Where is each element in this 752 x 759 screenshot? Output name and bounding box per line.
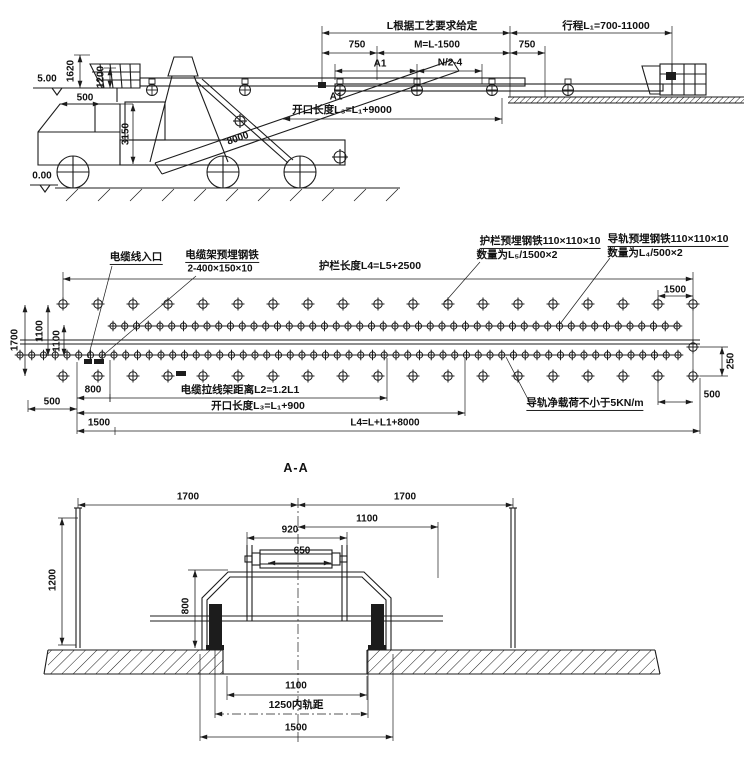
label-guardrail-length: 护栏长度L4=L5+2500 xyxy=(319,260,421,272)
label-cable-entry: 电缆线入口 xyxy=(110,251,163,265)
dim-1620: 1620 xyxy=(65,60,77,82)
label-guardrail-steel-2: 数量为L₅/1500×2 xyxy=(477,249,558,261)
dim-l-spec: L根据工艺要求给定 xyxy=(387,20,477,32)
label-cable-rack-2: 2-400×150×10 xyxy=(187,263,252,275)
label-cable-stay-distance: 电缆拉线架距离L2=1.2L1 xyxy=(181,384,300,396)
dim-750-left: 750 xyxy=(349,39,366,51)
dim-500-plan-left: 500 xyxy=(44,396,61,408)
section-title: A-A xyxy=(283,461,308,475)
dim-n-formula: N/2-4 xyxy=(438,57,462,69)
dim-1200-top: 1200 xyxy=(95,66,107,88)
dim-1500-sec: 1500 xyxy=(285,722,307,734)
labels-layer: L根据工艺要求给定 行程L₁=700-11000 750 M=L-1500 75… xyxy=(0,0,752,759)
dim-250-plan: 250 xyxy=(725,353,737,370)
dim-750-right: 750 xyxy=(519,39,536,51)
label-rail-steel-1: 导轨预埋钢铁110×110×10 xyxy=(608,233,729,247)
dim-m-formula: M=L-1500 xyxy=(414,39,460,51)
dim-travel: 行程L₁=700-11000 xyxy=(562,20,650,32)
dim-1100-sec-bottom: 1100 xyxy=(285,680,307,692)
dim-650: 650 xyxy=(294,545,311,557)
dim-a1-upper: A1 xyxy=(374,58,387,70)
dim-920: 920 xyxy=(282,524,299,536)
dim-1100-outer: 1100 xyxy=(34,320,46,342)
dim-1200-sec: 1200 xyxy=(47,569,59,591)
dim-1700-sec-left: 1700 xyxy=(177,491,199,503)
dim-1500-plan-left: 1500 xyxy=(88,417,110,429)
engineering-drawing-canvas: L根据工艺要求给定 行程L₁=700-11000 750 M=L-1500 75… xyxy=(0,0,752,759)
dim-3150: 3150 xyxy=(120,123,132,145)
dim-8000: 8000 xyxy=(226,130,251,148)
dim-800-plan: 800 xyxy=(85,384,102,396)
dim-1700-plan: 1700 xyxy=(9,329,21,351)
dim-500-top: 500 xyxy=(77,92,94,104)
label-cable-rack-1: 电缆架预埋钢铁 xyxy=(185,249,259,263)
elevation-top-level: 5.00 xyxy=(37,73,56,85)
dim-a1-lower: A1 xyxy=(330,91,343,103)
dim-1100-inner: 1100 xyxy=(51,330,63,352)
label-rail-steel-2: 数量为L₄/500×2 xyxy=(607,247,682,259)
label-guardrail-steel-1: 护栏预埋钢铁110×110×10 xyxy=(480,235,601,249)
dim-opening-top: 开口长度L₃=L₁+9000 xyxy=(292,104,392,116)
elevation-ground-level: 0.00 xyxy=(32,170,51,182)
dim-1700-sec-right: 1700 xyxy=(394,491,416,503)
label-l4-formula: L4=L+L1+8000 xyxy=(350,417,419,429)
dim-1100-sec-top: 1100 xyxy=(356,513,378,525)
dim-rail-gauge: 1250内轨距 xyxy=(269,699,324,711)
label-rail-load: 导轨净载荷不小于5KN/m xyxy=(526,397,643,411)
label-opening-plan: 开口长度L₃=L₁+900 xyxy=(211,400,305,412)
dim-800-sec: 800 xyxy=(180,598,192,615)
dim-500-plan-right: 500 xyxy=(704,389,721,401)
dim-1500-top-right: 1500 xyxy=(664,284,686,296)
